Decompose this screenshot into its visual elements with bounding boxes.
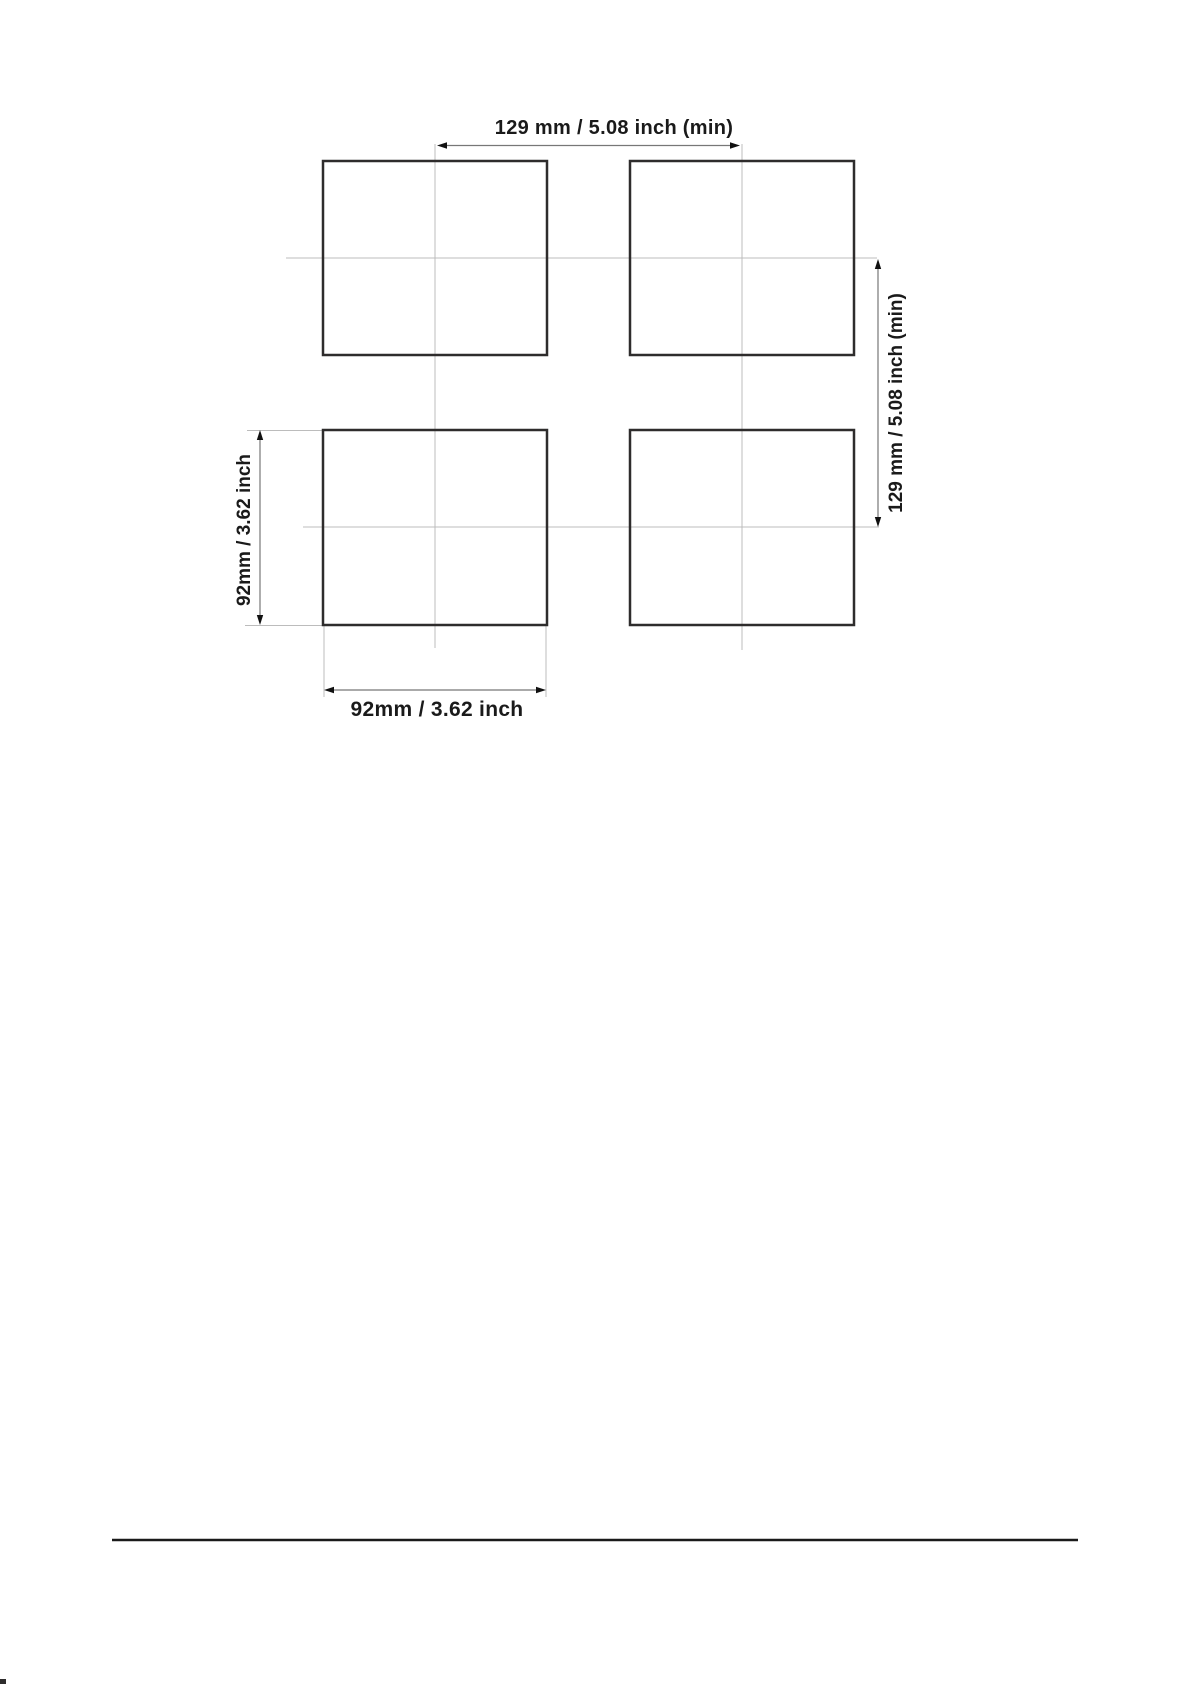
dimension-lines-group: [260, 146, 878, 691]
cutout-squares-group: [323, 161, 854, 625]
arrowhead-left-dim-down: [257, 615, 263, 625]
document-page: 129 mm / 5.08 inch (min) 129 mm / 5.08 i…: [0, 0, 1191, 1685]
centerlines-group: [245, 144, 879, 697]
dimension-label-left: 92mm / 3.62 inch: [234, 380, 256, 680]
arrowhead-left-dim-up: [257, 430, 263, 440]
cutout-spacing-diagram: [0, 0, 1191, 1685]
arrowhead-right-dim-down: [875, 517, 881, 527]
arrowhead-right-dim-up: [875, 259, 881, 269]
dimension-label-right: 129 mm / 5.08 inch (min): [886, 253, 908, 553]
arrowhead-top-dim-right: [730, 142, 740, 148]
dimension-label-bottom: 92mm / 3.62 inch: [287, 699, 587, 721]
arrowhead-bottom-dim-right: [536, 687, 546, 693]
dimension-label-top: 129 mm / 5.08 inch (min): [464, 117, 764, 139]
arrowheads-group: [257, 142, 881, 693]
page-edge-artifact: [0, 1679, 6, 1684]
arrowhead-top-dim-left: [437, 142, 447, 148]
arrowhead-bottom-dim-left: [324, 687, 334, 693]
